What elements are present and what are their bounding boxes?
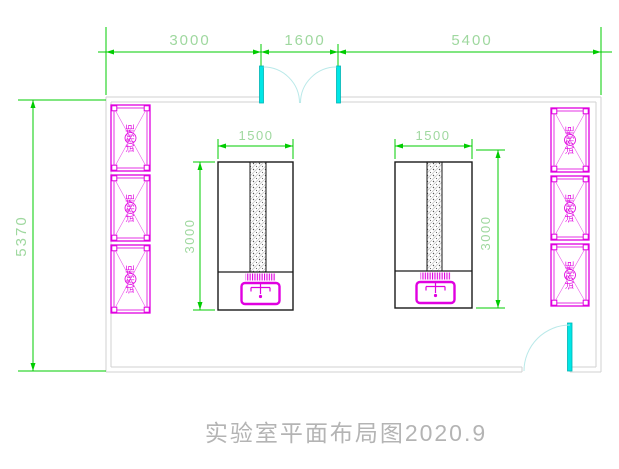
door-swing-arc (524, 325, 570, 371)
room-walls (106, 97, 601, 372)
bench-width-dimension: 1500 (395, 128, 472, 159)
cabinet-column-right: 试剂柜 试剂柜 试剂柜 (551, 108, 589, 306)
cad-floor-plan: 3000 1600 5400 5370 试剂柜 (0, 0, 619, 469)
bench-length-dimension: 3000 (182, 162, 215, 310)
bench-width-dimension: 1500 (218, 128, 293, 159)
dim-top-middle: 1600 (284, 32, 325, 49)
cabinet-label: 试剂柜 (564, 193, 575, 223)
left-dimension: 5370 (13, 100, 106, 371)
top-dimension-chain: 3000 1600 5400 (98, 27, 612, 95)
reagent-shelf-strip (427, 162, 442, 271)
cabinet-label: 试剂柜 (564, 260, 575, 290)
bench-island-left: 1500 3000 (182, 128, 293, 310)
dim-bench-length: 3000 (182, 219, 197, 254)
dim-top-left: 3000 (169, 32, 210, 49)
cabinet-cell: 试剂柜 (551, 176, 589, 240)
dim-bench-width: 1500 (239, 128, 274, 143)
floor-plan-drawing: 3000 1600 5400 5370 试剂柜 (0, 0, 619, 469)
reagent-shelf-strip (250, 162, 266, 272)
cabinet-cell: 试剂柜 (111, 175, 150, 241)
cabinet-label: 试剂柜 (125, 264, 136, 294)
dim-bench-length: 3000 (478, 216, 493, 251)
dim-left-total: 5370 (13, 215, 30, 256)
bench-length-dimension: 3000 (476, 150, 505, 308)
door-swing-arc (301, 67, 337, 103)
door-leaf (260, 66, 264, 103)
door-leaf (568, 323, 573, 371)
cabinet-cell: 试剂柜 (111, 245, 150, 313)
cabinet-cell: 试剂柜 (551, 108, 589, 172)
single-door-bottom-right (524, 323, 572, 371)
door-swing-arc (264, 67, 300, 103)
door-leaf (337, 66, 341, 103)
cabinet-label: 试剂柜 (125, 123, 136, 153)
drawing-title: 实验室平面布局图2020.9 (205, 420, 487, 446)
dim-top-right: 5400 (451, 32, 492, 49)
double-door-top (260, 66, 341, 103)
cabinet-cell: 试剂柜 (551, 244, 589, 306)
cabinet-label: 试剂柜 (564, 125, 575, 155)
cabinet-cell: 试剂柜 (111, 105, 150, 171)
cabinet-column-left: 试剂柜 试剂柜 试剂柜 (111, 105, 150, 313)
bench-island-right: 1500 3000 (395, 128, 505, 308)
dim-bench-width: 1500 (416, 128, 451, 143)
cabinet-label: 试剂柜 (125, 193, 136, 223)
